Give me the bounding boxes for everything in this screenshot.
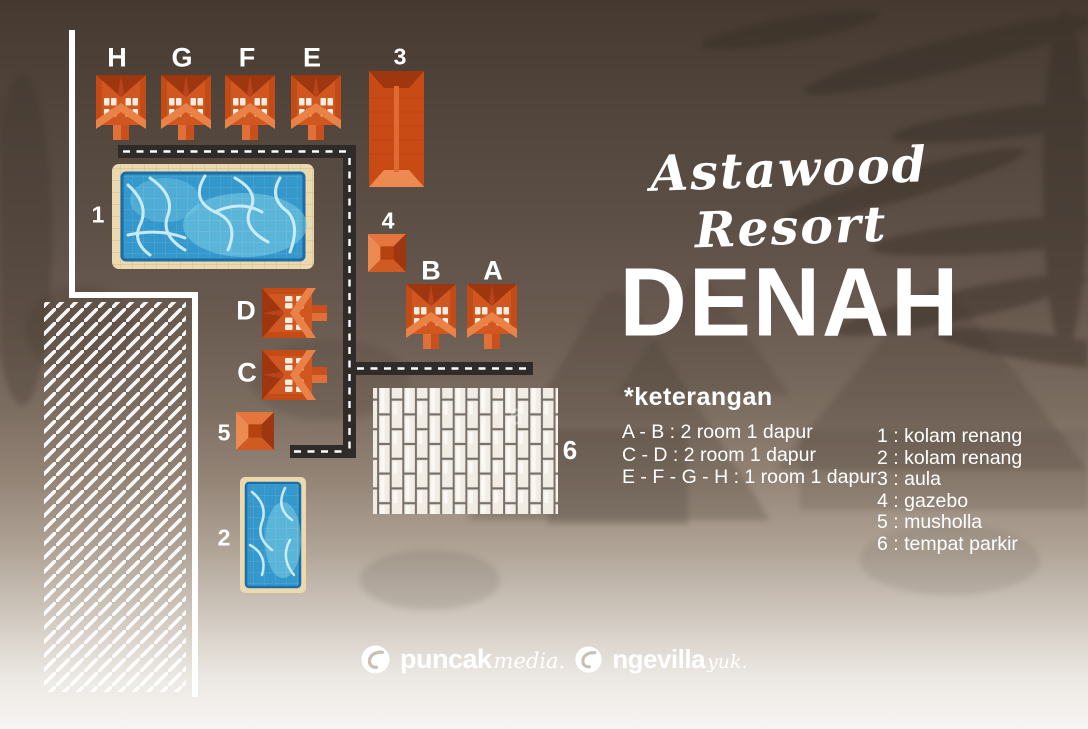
label-4: 4	[382, 210, 395, 233]
brand-script-text: media.	[494, 649, 566, 673]
label-a: A	[483, 258, 503, 285]
page-title: DENAH	[570, 256, 1010, 349]
ngevilla-brand: ngevilla yuk.	[612, 644, 747, 675]
legend-heading: *keterangan	[624, 383, 773, 412]
legend-place-list: 1 : kolam renang 2 : kolam renang 3 : au…	[877, 426, 1022, 556]
label-f: F	[239, 45, 256, 72]
label-b: B	[421, 258, 441, 285]
legend-place-item: 4 : gazebo	[877, 491, 1022, 513]
legend-room-note: A - B : 2 room 1 dapur	[622, 421, 877, 444]
label-5: 5	[218, 422, 231, 445]
label-d: D	[236, 298, 256, 325]
poster-root: H G F E 3 1 4 B A D C 5 2 6 6 Astawood R…	[0, 0, 1088, 729]
legend-place-item: 5 : musholla	[877, 512, 1022, 534]
legend-room-note: C - D : 2 room 1 dapur	[622, 444, 877, 467]
map-labels: H G F E 3 1 4 B A D C 5 2 6 6	[0, 0, 1088, 729]
ngevilla-logo-icon	[574, 645, 603, 674]
label-e: E	[303, 45, 321, 72]
title-block: Astawood Resort DENAH	[570, 140, 1010, 346]
resort-name: Astawood Resort	[568, 132, 1012, 263]
label-3: 3	[394, 46, 407, 69]
label-6: 6	[563, 437, 577, 463]
legend-room-notes: A - B : 2 room 1 dapur C - D : 2 room 1 …	[622, 421, 877, 489]
legend-place-item: 1 : kolam renang	[877, 426, 1022, 448]
brand-script-text: yuk.	[707, 651, 748, 673]
legend-room-note: E - F - G - H : 1 room 1 dapur	[622, 466, 877, 489]
legend-place-item: 2 : kolam renang	[877, 448, 1022, 470]
footer-brands: puncak media. ngevilla yuk.	[360, 640, 748, 678]
legend-place-item: 3 : aula	[877, 469, 1022, 491]
label-g: G	[171, 45, 192, 72]
label-1: 1	[92, 204, 105, 227]
brand-bold-text: puncak	[400, 644, 492, 675]
legend-place-item: 6 : tempat parkir	[877, 534, 1022, 556]
puncak-media-brand: puncak media.	[400, 644, 565, 675]
puncak-media-logo-icon	[360, 644, 391, 675]
brand-bold-text: ngevilla	[612, 644, 705, 675]
label-c: C	[237, 360, 257, 387]
label-h: H	[107, 45, 127, 72]
label-2: 2	[218, 527, 231, 550]
label-6-faint: 6	[510, 406, 523, 429]
